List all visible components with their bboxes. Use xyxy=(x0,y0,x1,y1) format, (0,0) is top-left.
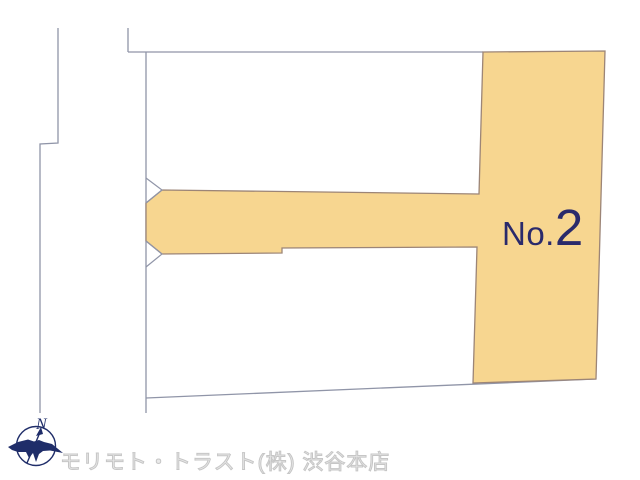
site-plan: No.2 N モリモト・トラスト(株) 渋谷本店 xyxy=(0,0,640,480)
lot-number-prefix: No. xyxy=(502,215,555,252)
west-parcel-boundary xyxy=(40,28,58,413)
company-watermark: モリモト・トラスト(株) 渋谷本店 xyxy=(60,446,390,476)
south-parcel-boundary xyxy=(146,379,596,398)
lot-number-label: No.2 xyxy=(502,202,583,253)
lot-number-value: 2 xyxy=(555,199,583,256)
compass-north-label: N xyxy=(36,416,47,434)
